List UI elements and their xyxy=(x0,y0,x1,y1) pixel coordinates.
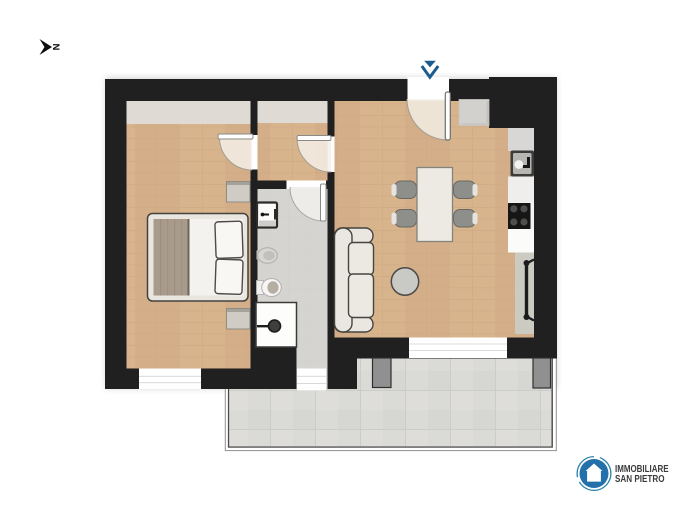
svg-text:N: N xyxy=(50,44,61,51)
svg-text:SAN PIETRO: SAN PIETRO xyxy=(615,474,665,485)
